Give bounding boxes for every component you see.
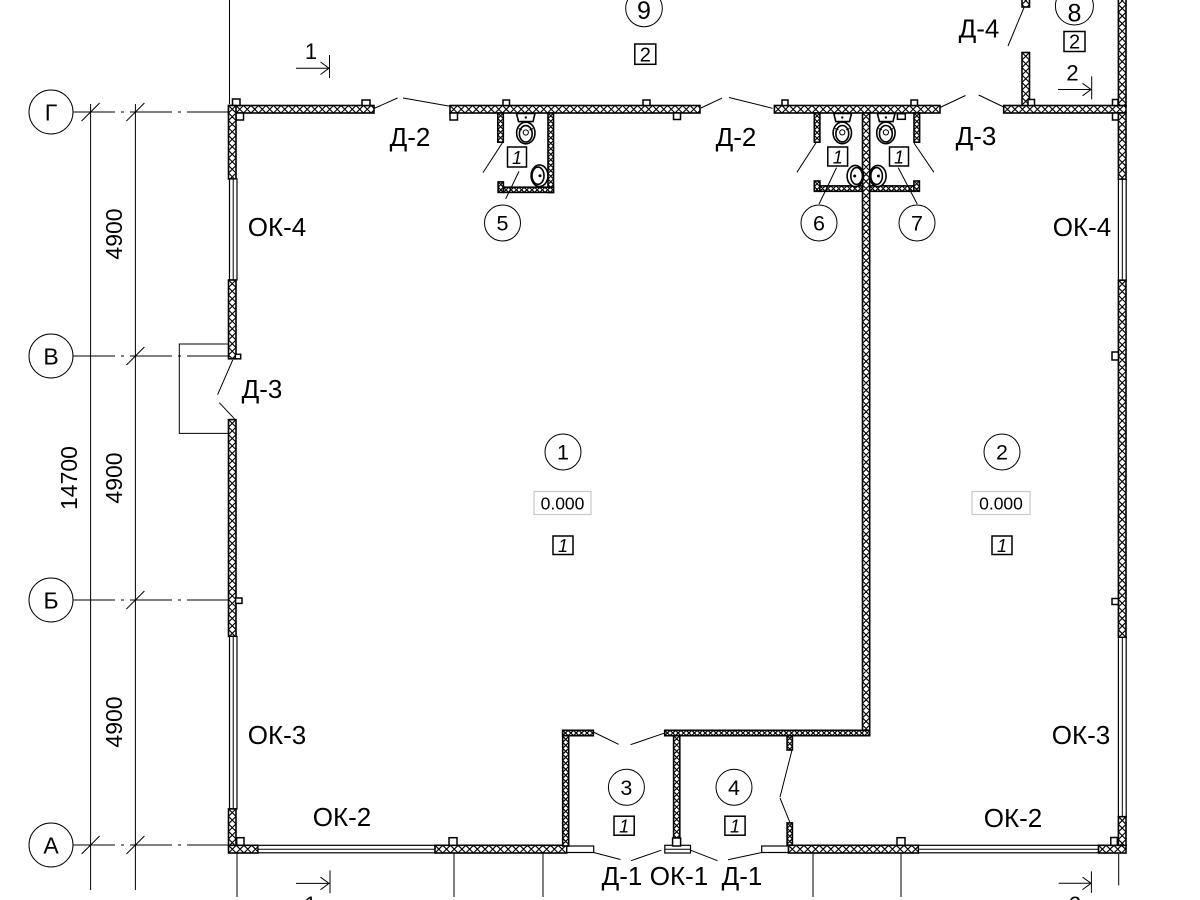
svg-text:5: 5 xyxy=(497,212,509,236)
svg-text:2: 2 xyxy=(1069,892,1081,900)
svg-text:ОК-3: ОК-3 xyxy=(248,720,307,750)
svg-text:2: 2 xyxy=(996,441,1008,465)
svg-text:ОК-2: ОК-2 xyxy=(313,802,372,832)
svg-text:2: 2 xyxy=(640,44,651,66)
svg-text:ОК-2: ОК-2 xyxy=(984,803,1043,833)
svg-text:ОК-3: ОК-3 xyxy=(1052,720,1111,750)
svg-text:1: 1 xyxy=(619,817,629,837)
svg-text:ОК-1: ОК-1 xyxy=(650,861,709,891)
svg-text:Д-2: Д-2 xyxy=(716,122,757,152)
svg-text:Д-3: Д-3 xyxy=(956,121,997,151)
svg-text:14700: 14700 xyxy=(56,446,82,510)
svg-text:ОК-4: ОК-4 xyxy=(248,212,307,242)
svg-text:ОК-4: ОК-4 xyxy=(1053,212,1112,242)
svg-text:9: 9 xyxy=(637,0,651,25)
svg-text:1: 1 xyxy=(730,817,740,837)
svg-text:В: В xyxy=(43,344,58,370)
svg-text:1: 1 xyxy=(557,441,569,465)
svg-text:6: 6 xyxy=(813,212,825,236)
svg-text:Д-1: Д-1 xyxy=(722,861,763,891)
svg-text:1: 1 xyxy=(305,39,317,64)
svg-text:4900: 4900 xyxy=(101,208,127,259)
svg-text:1: 1 xyxy=(304,892,316,900)
svg-text:3: 3 xyxy=(620,776,632,800)
svg-text:Д-3: Д-3 xyxy=(242,374,283,404)
svg-text:Д-4: Д-4 xyxy=(959,14,1000,44)
svg-text:1: 1 xyxy=(833,148,843,168)
svg-text:7: 7 xyxy=(911,212,923,236)
svg-text:4: 4 xyxy=(728,776,740,800)
svg-text:1: 1 xyxy=(997,536,1007,556)
svg-text:Д-2: Д-2 xyxy=(390,122,431,152)
svg-text:2: 2 xyxy=(1066,61,1078,86)
svg-text:1: 1 xyxy=(512,148,522,168)
svg-text:4900: 4900 xyxy=(101,452,127,503)
svg-text:0.000: 0.000 xyxy=(979,494,1023,514)
svg-text:Б: Б xyxy=(43,588,58,614)
svg-text:Г: Г xyxy=(45,100,58,126)
svg-text:1: 1 xyxy=(894,148,904,168)
svg-text:Д-1: Д-1 xyxy=(602,861,643,891)
svg-text:0.000: 0.000 xyxy=(541,494,585,514)
svg-text:1: 1 xyxy=(558,536,568,556)
svg-text:А: А xyxy=(43,833,59,859)
svg-text:8: 8 xyxy=(1067,0,1081,28)
svg-text:4900: 4900 xyxy=(101,696,127,747)
svg-text:2: 2 xyxy=(1069,32,1080,54)
